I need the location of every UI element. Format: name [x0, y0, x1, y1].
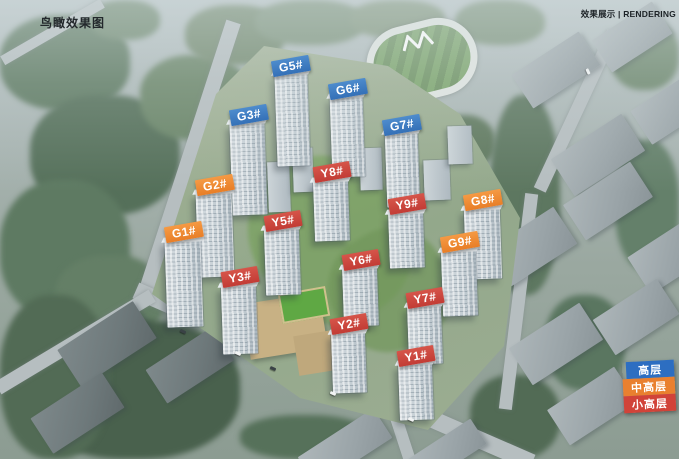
legend-item-small-high-rise: 小高层	[623, 394, 676, 414]
building-label-g1: G1#	[164, 221, 204, 243]
caption-rendering: 效果展示 | RENDERING	[581, 8, 676, 20]
building-label-y5: Y5#	[263, 210, 302, 232]
caption-birdseye: 鸟瞰效果图	[40, 14, 105, 31]
building-label-y9: Y9#	[387, 193, 426, 215]
building-label-g3: G3#	[229, 104, 269, 126]
building-label-y8: Y8#	[312, 161, 351, 183]
aerial-rendering: G5#G6#G3#G7#G2#G1#G8#G9#Y8#Y5#Y9#Y6#Y3#Y…	[0, 0, 679, 459]
building-label-y1: Y1#	[396, 345, 435, 367]
legend: 高层 中高层 小高层	[622, 360, 677, 414]
building-label-g2: G2#	[195, 174, 235, 196]
building-label-g9: G9#	[440, 231, 480, 253]
building-label-g8: G8#	[463, 189, 503, 211]
building-label-y6: Y6#	[341, 249, 380, 271]
building-label-y3: Y3#	[220, 266, 259, 288]
building-labels-layer: G5#G6#G3#G7#G2#G1#G8#G9#Y8#Y5#Y9#Y6#Y3#Y…	[0, 0, 679, 459]
building-label-g7: G7#	[382, 114, 422, 136]
building-label-y2: Y2#	[329, 313, 368, 335]
building-label-g5: G5#	[271, 55, 311, 77]
building-label-g6: G6#	[328, 78, 368, 100]
building-label-y7: Y7#	[405, 287, 444, 309]
